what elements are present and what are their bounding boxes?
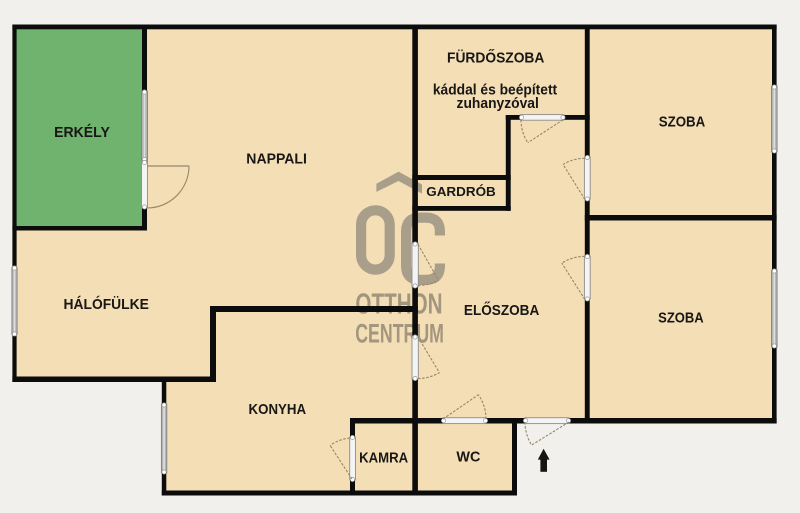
svg-text:SZOBA: SZOBA xyxy=(658,310,704,327)
svg-text:ERKÉLY: ERKÉLY xyxy=(54,124,110,141)
svg-text:SZOBA: SZOBA xyxy=(659,114,706,131)
svg-text:NAPPALI: NAPPALI xyxy=(246,151,307,168)
svg-text:CENTRUM: CENTRUM xyxy=(355,318,444,348)
svg-text:KONYHA: KONYHA xyxy=(249,401,307,418)
svg-text:WC: WC xyxy=(456,448,480,465)
svg-text:ELŐSZOBA: ELŐSZOBA xyxy=(464,301,540,319)
svg-text:GARDRÓB: GARDRÓB xyxy=(426,184,496,199)
svg-text:KAMRA: KAMRA xyxy=(359,450,408,467)
svg-text:zuhanyzóval: zuhanyzóval xyxy=(457,95,539,112)
svg-text:FÜRDŐSZOBA: FÜRDŐSZOBA xyxy=(447,48,544,66)
svg-text:HÁLÓFÜLKE: HÁLÓFÜLKE xyxy=(64,295,149,313)
svg-text:OTTHON: OTTHON xyxy=(355,289,442,321)
